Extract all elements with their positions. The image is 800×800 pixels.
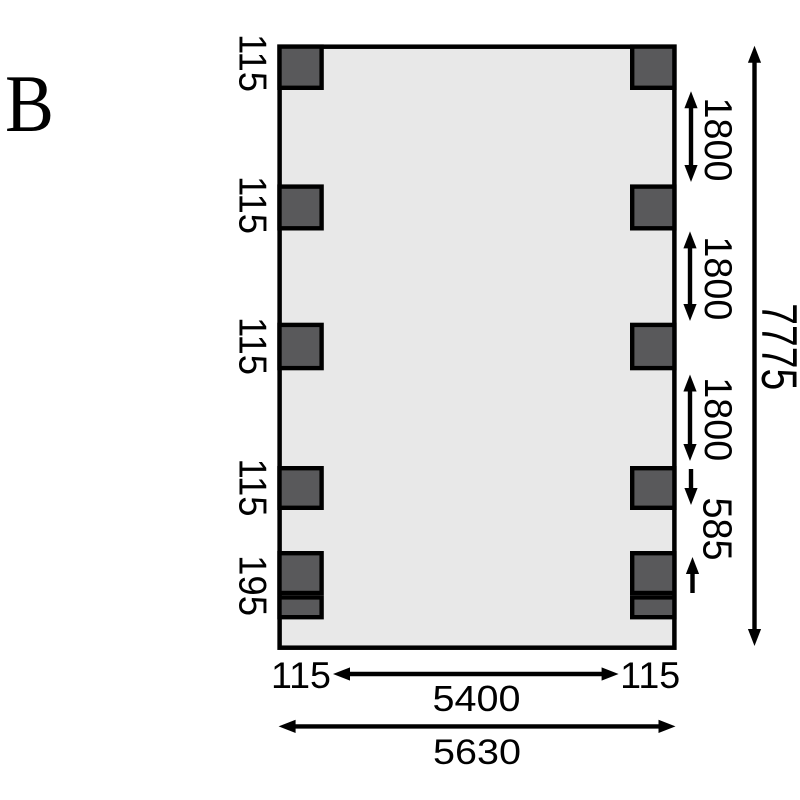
svg-text:115: 115 (230, 317, 273, 375)
svg-text:1800: 1800 (696, 236, 739, 320)
svg-text:115: 115 (620, 654, 680, 696)
svg-text:B: B (5, 58, 54, 149)
svg-text:5630: 5630 (433, 732, 521, 772)
svg-text:5400: 5400 (433, 678, 521, 719)
svg-text:1800: 1800 (696, 98, 739, 182)
svg-text:115: 115 (230, 176, 273, 234)
svg-text:115: 115 (271, 654, 331, 696)
svg-text:195: 195 (230, 555, 273, 616)
svg-text:1800: 1800 (696, 377, 739, 461)
svg-text:115: 115 (230, 34, 273, 92)
svg-text:115: 115 (230, 459, 273, 517)
svg-text:7775: 7775 (751, 303, 800, 390)
svg-text:585: 585 (695, 498, 741, 561)
